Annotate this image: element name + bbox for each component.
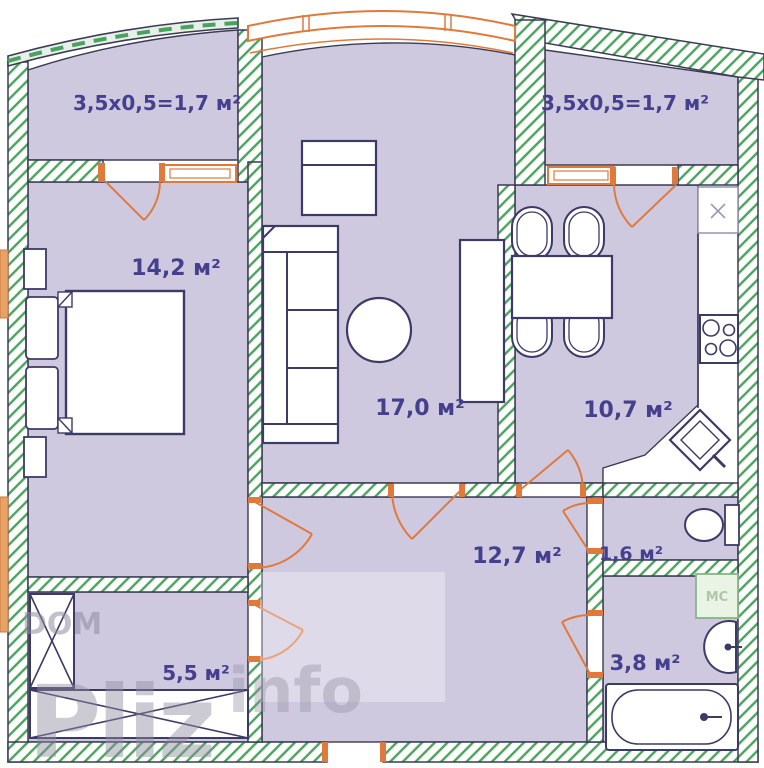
entrance-jamb-right — [380, 742, 386, 762]
toilet — [685, 505, 739, 545]
tv-stand — [460, 240, 504, 402]
floor-plan-drawing: DOM Pliz info 3,5x0,5=1,7 м² 3,5x0,5=1,7… — [0, 0, 764, 768]
nightstand — [24, 437, 46, 477]
label-storage: 5,5 м² — [162, 661, 230, 685]
wall-living-hallway-b — [461, 483, 518, 497]
label-washing-machine: МС — [706, 590, 728, 605]
wall-bedroom-living-mid — [248, 568, 262, 603]
wall-left-exterior — [8, 62, 28, 762]
dining-chair — [512, 207, 552, 261]
label-wc: 1,6 м² — [599, 543, 663, 565]
wall-kitchen-wc — [603, 483, 738, 497]
window-bedroom-balcony — [164, 165, 236, 182]
sofa — [263, 226, 338, 443]
wall-bedroom-storage — [28, 577, 248, 592]
cabinet — [302, 141, 376, 215]
entrance-jamb-left — [322, 742, 328, 762]
stove — [700, 315, 738, 363]
coffee-table — [347, 298, 411, 362]
label-living: 17,0 м² — [375, 396, 465, 421]
dining-table — [512, 256, 612, 318]
pillow — [26, 367, 58, 429]
wall-right-exterior — [738, 75, 758, 762]
vent-box — [698, 187, 738, 233]
label-balcony-left: 3,5x0,5=1,7 м² — [73, 91, 241, 115]
window-strip-left-upper — [0, 250, 8, 318]
nightstand — [24, 249, 46, 289]
wall-bedroom-living-upper — [248, 162, 262, 502]
pillow — [26, 297, 58, 359]
watermark-dom: DOM — [22, 607, 102, 642]
label-bedroom: 14,2 м² — [131, 256, 221, 281]
bathtub — [606, 684, 738, 750]
wall-bedroom-balcony — [28, 160, 103, 182]
window-strip-left-lower — [0, 497, 8, 632]
wall-living-hallway-a — [262, 483, 392, 497]
label-kitchen: 10,7 м² — [583, 398, 673, 423]
label-bathroom: 3,8 м² — [610, 651, 681, 675]
wall-hallway-bath-lower — [587, 674, 603, 742]
label-hallway: 12,7 м² — [472, 544, 562, 569]
window-kitchen-balcony — [548, 167, 614, 184]
label-balcony-right: 3,5x0,5=1,7 м² — [541, 91, 709, 115]
wall-kitchen-balcony — [678, 165, 738, 185]
bed — [66, 291, 184, 434]
floor-plan-page: DOM Pliz info 3,5x0,5=1,7 м² 3,5x0,5=1,7… — [0, 0, 764, 768]
watermark-info: info — [228, 654, 363, 727]
dining-chair — [564, 207, 604, 261]
